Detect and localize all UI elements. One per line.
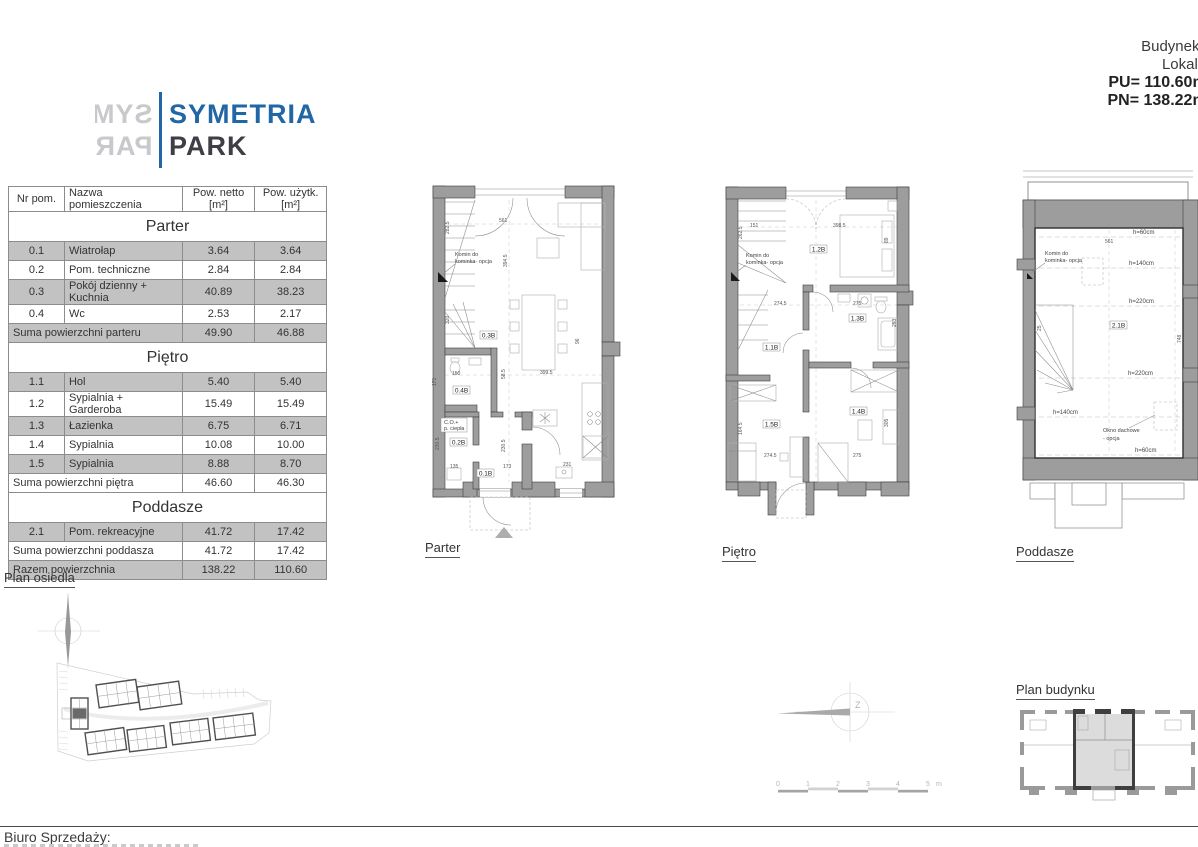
svg-text:282.5: 282.5 — [445, 221, 451, 234]
logo-name-top: SYMETRIA — [169, 98, 317, 130]
svg-text:305: 305 — [884, 418, 890, 427]
room-areas-table: Nr pom. Nazwa pomieszczenia Pow. netto [… — [8, 186, 327, 580]
svg-text:399.5: 399.5 — [540, 370, 553, 376]
svg-text:150: 150 — [452, 371, 461, 377]
net-area-label: PN= 138.22m² — [900, 92, 1198, 110]
col-nazwa: Nazwa pomieszczenia — [64, 187, 182, 212]
svg-text:p. ciepła: p. ciepła — [444, 426, 465, 432]
svg-text:89: 89 — [884, 237, 890, 243]
sheet-header: Budynek 8 Lokal B PU= 110.60m² PN= 138.2… — [900, 38, 1198, 110]
table-header-row: Nr pom. Nazwa pomieszczenia Pow. netto [… — [9, 187, 327, 212]
compass-letter: Z — [855, 700, 861, 710]
parter-porch — [470, 497, 530, 538]
svg-text:1.3B: 1.3B — [851, 316, 864, 323]
svg-text:151: 151 — [750, 223, 759, 229]
svg-text:230.5: 230.5 — [501, 439, 507, 452]
svg-text:- opcja: - opcja — [1103, 436, 1120, 442]
parter-floorplan: 0.1B 0.2B 0.3B 0.4B Komin do kominka- op… — [425, 172, 622, 545]
svg-text:274.5: 274.5 — [774, 301, 787, 307]
col-netto: Pow. netto [m²] — [182, 187, 255, 212]
svg-text:h=220cm: h=220cm — [1128, 371, 1153, 377]
site-building — [170, 718, 210, 744]
svg-text:0.3B: 0.3B — [482, 333, 495, 340]
svg-text:m: m — [936, 781, 942, 788]
table-row: 1.3 Łazienka 6.75 6.71 — [9, 417, 327, 436]
svg-text:h=60cm: h=60cm — [1135, 448, 1157, 454]
site-building — [213, 713, 255, 740]
svg-text:231: 231 — [563, 462, 572, 468]
building-label: Budynek 8 — [900, 38, 1198, 56]
svg-text:230.5: 230.5 — [435, 437, 441, 450]
svg-text:262.5: 262.5 — [738, 226, 744, 239]
plan-budynku-label: Plan budynku — [1016, 682, 1095, 700]
poddasze-label: Poddasze — [1016, 544, 1074, 562]
table-row: 0.3 Pokój dzienny + Kuchnia 40.89 38.23 — [9, 280, 327, 305]
pietro-stairs — [731, 201, 786, 350]
svg-text:274.5: 274.5 — [764, 453, 777, 459]
svg-text:96: 96 — [575, 338, 581, 344]
site-building — [96, 679, 139, 707]
svg-text:h=140cm: h=140cm — [1053, 410, 1078, 416]
highlighted-flat — [1075, 710, 1133, 786]
svg-text:561: 561 — [1105, 239, 1114, 245]
site-building-highlighted — [62, 698, 88, 729]
col-uzytk: Pow. użytk. [m²] — [255, 187, 327, 212]
logo-name-bottom: PARK — [169, 130, 317, 162]
section-parter: Parter — [9, 212, 327, 242]
svg-text:h=220cm: h=220cm — [1129, 299, 1154, 305]
site-building — [85, 728, 127, 755]
poddasze-roof — [1023, 171, 1193, 200]
parter-label: Parter — [425, 540, 460, 558]
svg-text:Komin do: Komin do — [746, 253, 769, 259]
sum-row-parter: Suma powierzchni parteru 49.90 46.88 — [9, 324, 327, 343]
parter-guides — [445, 200, 610, 482]
svg-text:4: 4 — [896, 781, 900, 788]
svg-text:253: 253 — [892, 318, 898, 327]
section-poddasze: Poddasze — [9, 493, 327, 523]
svg-text:164.5: 164.5 — [738, 422, 744, 435]
svg-text:3: 3 — [866, 781, 870, 788]
poddasze-dormers — [1030, 483, 1184, 528]
svg-text:Okno dachowe: Okno dachowe — [1103, 428, 1140, 434]
svg-text:1.1B: 1.1B — [765, 345, 778, 352]
sum-row-poddasze: Suma powierzchni poddasza 41.72 17.42 — [9, 542, 327, 561]
site-building — [127, 725, 166, 751]
site-building — [137, 681, 182, 710]
svg-text:275: 275 — [853, 453, 862, 459]
svg-text:0: 0 — [776, 781, 780, 788]
svg-text:kominka- opcja: kominka- opcja — [1045, 258, 1083, 264]
col-nr-pom: Nr pom. — [9, 187, 65, 212]
table-row: 0.2 Pom. techniczne 2.84 2.84 — [9, 261, 327, 280]
svg-text:171: 171 — [432, 377, 438, 386]
logo-wordmark: SYMETRIA PARK — [169, 98, 317, 162]
sales-office-label: Biuro Sprzedaży: — [4, 829, 111, 845]
table-row: 1.4 Sypialnia 10.08 10.00 — [9, 436, 327, 455]
svg-text:1.5B: 1.5B — [765, 422, 778, 429]
svg-text:320: 320 — [445, 315, 451, 324]
svg-text:0.4B: 0.4B — [455, 388, 468, 395]
plan-osiedla-label: Plan osiedla — [4, 570, 75, 588]
svg-text:25: 25 — [1037, 325, 1043, 331]
svg-text:394.5: 394.5 — [503, 254, 509, 267]
svg-text:748: 748 — [1177, 334, 1183, 343]
svg-text:561: 561 — [499, 218, 508, 224]
pietro-label: Piętro — [722, 544, 756, 562]
svg-text:kominka- opcja: kominka- opcja — [455, 259, 493, 265]
table-row: 0.1 Wiatrołap 3.64 3.64 — [9, 242, 327, 261]
svg-text:1.4B: 1.4B — [852, 409, 865, 416]
table-row: 2.1 Pom. rekreacyjne 41.72 17.42 — [9, 523, 327, 542]
symetria-park-logo: SYMETRIA PARK SYMETRIA PARK — [95, 92, 317, 168]
compass-needle — [777, 709, 850, 716]
poddasze-room-labels: 2.1B — [1110, 321, 1127, 330]
table-row: 1.2 Sypialnia + Garderoba 15.49 15.49 — [9, 392, 327, 417]
svg-text:173: 173 — [503, 464, 512, 470]
sum-row-pietro: Suma powierzchni piętra 46.60 46.30 — [9, 474, 327, 493]
svg-text:h=60cm: h=60cm — [1133, 230, 1155, 236]
building-plan — [1015, 700, 1198, 812]
svg-text:0.1B: 0.1B — [479, 471, 492, 478]
table-row: 0.4 Wc 2.53 2.17 — [9, 305, 327, 324]
north-compass-scale: Z 0 1 2 3 4 5 m — [765, 680, 945, 805]
svg-text:58.5: 58.5 — [501, 369, 507, 379]
svg-text:1.2B: 1.2B — [812, 247, 825, 254]
footer-divider — [0, 826, 1198, 827]
svg-text:5: 5 — [926, 781, 930, 788]
svg-text:275: 275 — [853, 301, 862, 307]
svg-text:h=140cm: h=140cm — [1129, 261, 1154, 267]
svg-text:1: 1 — [806, 781, 810, 788]
pietro-furniture — [728, 201, 899, 482]
svg-text:0.2B: 0.2B — [452, 440, 465, 447]
highlighted-unit — [73, 709, 87, 719]
svg-text:Komin do: Komin do — [1045, 251, 1068, 257]
pietro-walls — [726, 187, 913, 515]
logo-mirror-text: SYMETRIA PARK — [95, 98, 153, 162]
poddasze-floorplan: h=60cm h=140cm h=220cm h=220cm h=140cm h… — [1015, 165, 1198, 545]
pietro-room-labels: 1.1B 1.2B 1.3B 1.4B 1.5B — [763, 245, 867, 429]
section-pietro: Piętro — [9, 343, 327, 373]
site-plan — [28, 645, 278, 815]
svg-text:kominka- opcja: kominka- opcja — [746, 260, 784, 266]
table-row: 1.1 Hol 5.40 5.40 — [9, 373, 327, 392]
unit-label: Lokal B — [900, 56, 1198, 74]
svg-text:398.5: 398.5 — [833, 223, 846, 229]
svg-text:135: 135 — [450, 464, 459, 470]
floorplan-sheet: Budynek 8 Lokal B PU= 110.60m² PN= 138.2… — [0, 0, 1198, 847]
svg-text:2: 2 — [836, 781, 840, 788]
pietro-annotations: Komin do kominka- opcja — [734, 253, 784, 274]
logo-divider-bar — [159, 92, 162, 168]
usable-area-label: PU= 110.60m² — [900, 74, 1198, 92]
table-row: 1.5 Sypialnia 8.88 8.70 — [9, 455, 327, 474]
svg-text:2.1B: 2.1B — [1112, 323, 1125, 330]
pietro-floorplan: 1.1B 1.2B 1.3B 1.4B 1.5B Komin do komink… — [718, 175, 917, 522]
svg-text:Komin do: Komin do — [455, 252, 478, 258]
scale-bar: 0 1 2 3 4 5 m — [776, 781, 942, 793]
